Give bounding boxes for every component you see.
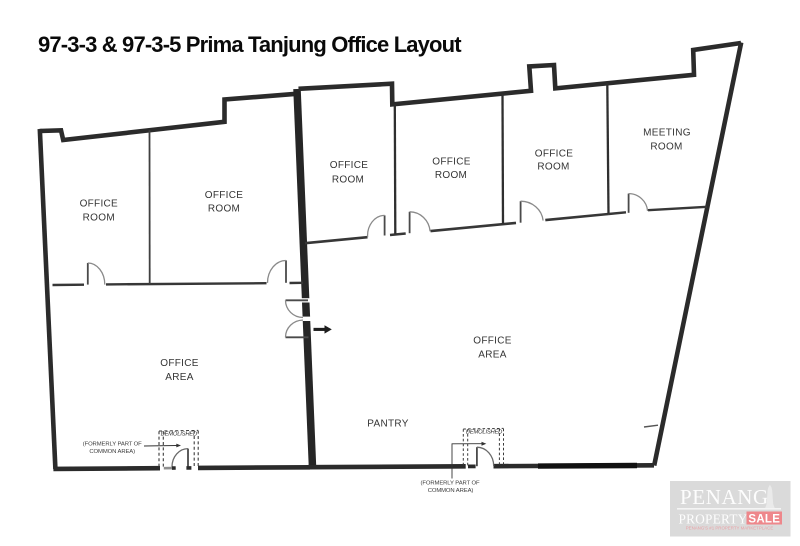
- svg-text:PROPERTY: PROPERTY: [679, 512, 748, 527]
- svg-text:(FORMERLY PART OF: (FORMERLY PART OF: [83, 441, 142, 447]
- svg-text:COMMON AREA): COMMON AREA): [89, 449, 135, 455]
- svg-text:OFFICE: OFFICE: [473, 336, 511, 347]
- svg-text:OFFICE: OFFICE: [432, 157, 470, 168]
- svg-text:OFFICE: OFFICE: [80, 198, 118, 209]
- svg-text:ROOM: ROOM: [332, 175, 364, 186]
- svg-text:(FORMERLY PART OF: (FORMERLY PART OF: [421, 480, 480, 486]
- svg-text:COMMON AREA): COMMON AREA): [428, 488, 474, 494]
- svg-text:AREA: AREA: [478, 349, 506, 360]
- svg-text:OFFICE: OFFICE: [205, 190, 243, 201]
- svg-text:OFFICE: OFFICE: [330, 160, 368, 171]
- svg-text:PENANG: PENANG: [680, 485, 769, 509]
- svg-text:OFFICE: OFFICE: [535, 149, 573, 160]
- svg-text:DEMOLISHED: DEMOLISHED: [161, 432, 197, 438]
- svg-text:SALE: SALE: [748, 513, 780, 525]
- svg-text:DEMOLISHED: DEMOLISHED: [466, 429, 502, 435]
- svg-text:ROOM: ROOM: [435, 170, 467, 181]
- svg-text:ROOM: ROOM: [208, 204, 240, 215]
- svg-text:ROOM: ROOM: [83, 212, 115, 223]
- svg-text:AREA: AREA: [165, 372, 193, 383]
- svg-text:ROOM: ROOM: [650, 142, 682, 153]
- svg-text:MEETING: MEETING: [643, 128, 691, 139]
- svg-text:PANTRY: PANTRY: [367, 419, 408, 430]
- svg-text:OFFICE: OFFICE: [160, 358, 198, 369]
- svg-text:97-3-3 & 97-3-5 Prima Tanjung: 97-3-3 & 97-3-5 Prima Tanjung Office Lay…: [38, 32, 462, 57]
- svg-text:PENANG'S #1 PROPERTY MARKETPLA: PENANG'S #1 PROPERTY MARKETPLACE: [686, 526, 774, 531]
- svg-text:ROOM: ROOM: [537, 162, 569, 173]
